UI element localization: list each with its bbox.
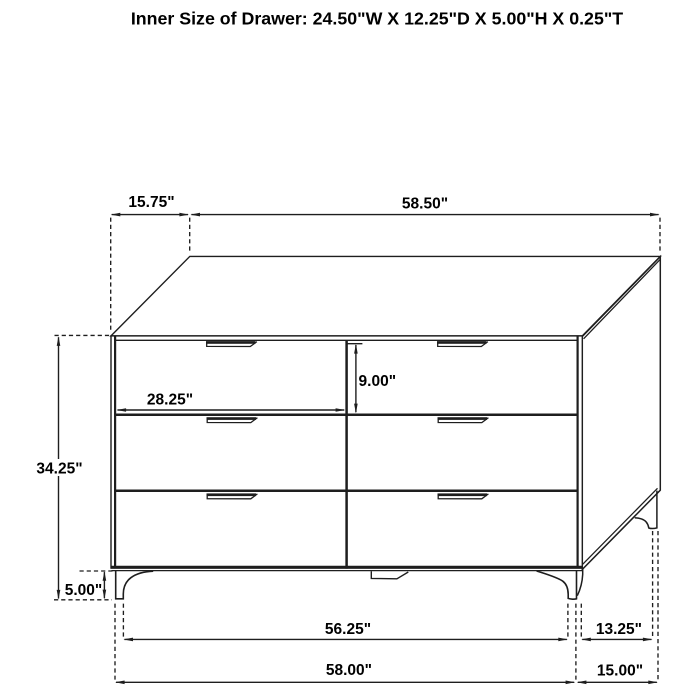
svg-text:13.25": 13.25" bbox=[596, 621, 642, 638]
svg-text:28.25": 28.25" bbox=[147, 392, 193, 409]
svg-text:5.00": 5.00" bbox=[65, 582, 103, 599]
svg-text:15.00": 15.00" bbox=[597, 663, 643, 680]
svg-text:56.25": 56.25" bbox=[325, 621, 371, 638]
svg-text:15.75": 15.75" bbox=[128, 194, 174, 211]
svg-text:9.00": 9.00" bbox=[359, 373, 397, 390]
svg-text:Inner Size of Drawer: 24.50"W: Inner Size of Drawer: 24.50"W X 12.25"D … bbox=[131, 9, 623, 29]
svg-text:58.50": 58.50" bbox=[402, 196, 448, 213]
svg-text:58.00": 58.00" bbox=[326, 662, 372, 679]
svg-text:34.25": 34.25" bbox=[36, 461, 82, 478]
